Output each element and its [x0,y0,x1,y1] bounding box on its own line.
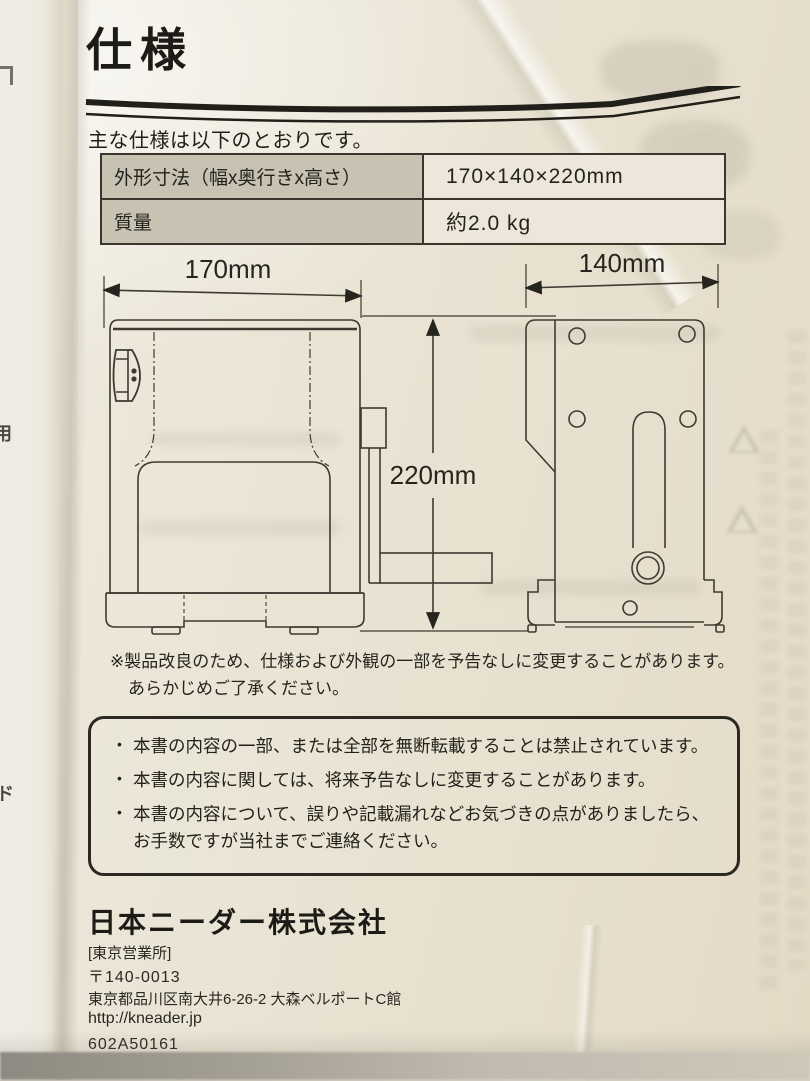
page-title: 仕様 [86,14,194,80]
dim-width-label: 170mm [185,254,272,284]
dim-height-label: 220mm [390,460,477,490]
product-note: ※製品改良のため、仕様および外観の一部を予告なしに変更することがあります。 あら… [110,648,735,702]
address: 東京都品川区南大井6-26-2 大森ベルポートC館 [88,988,401,1009]
postal-code: 〒140-0013 [88,963,181,987]
width-dimension: 170mm [104,254,361,328]
spec-row-weight-label: 質量 [102,200,424,243]
notice-item: 本書の内容に関しては、将来予告なしに変更することがあります。 [113,767,719,794]
margin-glyph-lower: ド [0,780,14,806]
website-url: http://kneader.jp [88,1010,202,1028]
spec-table: 外形寸法（幅x奥行きx高さ） 170×140×220mm 質量 約2.0 kg [100,153,726,245]
copyright-notice-box: 本書の内容の一部、または全部を無断転載することは禁止されています。 本書の内容に… [88,716,740,876]
office-label: [東京営業所] [88,942,171,963]
margin-glyph-middle: 用 [0,420,12,446]
spec-row-dimensions-value: 170×140×220mm [424,155,724,200]
front-view [106,320,364,634]
dim-depth-label: 140mm [579,250,666,278]
spec-row-dimensions-label: 外形寸法（幅x奥行きx高さ） [102,155,424,200]
product-note-line2: あらかじめご了承ください。 [110,675,735,702]
spec-intro-text: 主な仕様は以下のとおりです。 [88,124,373,153]
company-name: 日本ニーダー株式会社 [88,901,388,941]
technical-drawing: 170mm 220mm 140mm [88,250,738,650]
table-surface-below-page [0,1052,810,1080]
notice-item: 本書の内容の一部、または全部を無断転載することは禁止されています。 [113,733,719,760]
notice-item: 本書の内容について、誤りや記載漏れなどお気づきの点がありましたら、お手数ですが当… [113,801,719,855]
latch-detail [114,350,141,401]
margin-partial-glyph [0,66,13,85]
spec-row-weight-value: 約2.0 kg [424,200,724,243]
side-view [526,320,724,632]
depth-dimension: 140mm [526,250,718,308]
crank-handle [361,408,492,583]
product-note-line1: ※製品改良のため、仕様および外観の一部を予告なしに変更することがあります。 [110,648,735,675]
